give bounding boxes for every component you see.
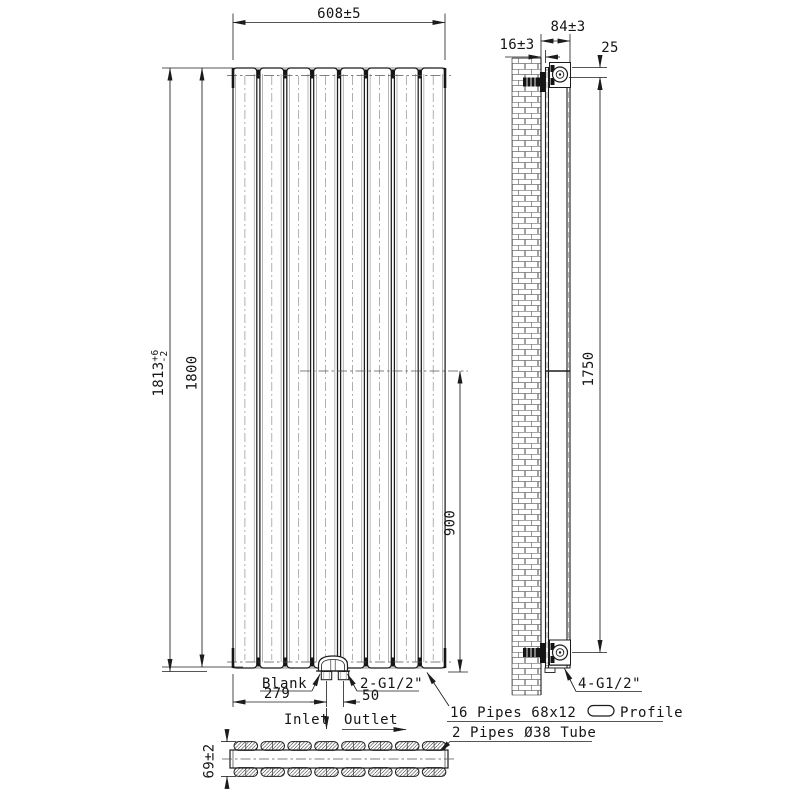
label-blank-leader: Blank xyxy=(260,674,320,692)
note-tube-label: 2 Pipes Ø38 Tube xyxy=(452,725,596,741)
end-cap xyxy=(444,648,447,668)
dim-height-panel: 1800 xyxy=(162,68,243,667)
inlet-label: Inlet xyxy=(284,712,329,728)
radiator-side-profile xyxy=(545,68,571,673)
front-view: 608±5 1813+6-2 1800 900 xyxy=(150,6,468,730)
label-connections-leader: 2-G1/2" xyxy=(348,674,424,692)
panel-joint xyxy=(337,70,341,79)
bottom-foot xyxy=(545,668,555,673)
connections-label: 2-G1/2" xyxy=(360,676,423,692)
label-side-connections-leader: 4-G1/2" xyxy=(565,669,643,693)
dim-center-label: 900 xyxy=(443,510,459,536)
panel-joint xyxy=(257,70,261,79)
radiator-panels xyxy=(233,68,445,668)
dim-width-label: 608±5 xyxy=(317,6,361,22)
side-view: 16±3 84±3 25 1750 4-G1/2" xyxy=(500,19,642,695)
wall-section xyxy=(512,58,541,695)
radiator-drawing-canvas: 608±5 1813+6-2 1800 900 xyxy=(0,0,800,800)
panel-joint xyxy=(283,70,287,79)
inlet-tapping xyxy=(321,672,331,680)
side-connections-label: 4-G1/2" xyxy=(578,676,641,692)
inlet-outlet-labels: Inlet Outlet xyxy=(284,708,406,730)
dim-bracket-span: 1750 xyxy=(572,78,607,653)
dim-depth-from-wall: 84±3 xyxy=(541,19,585,62)
dim-height-panel-label: 1800 xyxy=(185,356,201,391)
dim-height-overall-label: 1813+6-2 xyxy=(150,350,170,397)
notes: 16 Pipes 68x12 Profile 2 Pipes Ø38 Tube xyxy=(427,673,683,753)
dim-wall-gap-label: 16±3 xyxy=(500,37,535,53)
note-tube: 2 Pipes Ø38 Tube xyxy=(440,725,597,752)
technical-drawing-page: 608±5 1813+6-2 1800 900 xyxy=(0,0,800,800)
dim-top-offset-label: 25 xyxy=(601,40,618,56)
panel-joint xyxy=(391,70,395,79)
wall-anchor-screw xyxy=(523,648,540,657)
panel-joint xyxy=(364,70,368,79)
outlet-tapping xyxy=(338,672,348,680)
panel-joint xyxy=(418,70,422,79)
note-profile: 16 Pipes 68x12 Profile xyxy=(427,673,683,722)
note-profile-suffix: Profile xyxy=(620,705,683,721)
dim-depth-from-wall-label: 84±3 xyxy=(551,19,586,35)
note-profile-prefix: 16 Pipes 68x12 xyxy=(450,705,576,721)
end-cap xyxy=(444,68,447,88)
dim-depth-label: 69±2 xyxy=(202,744,218,779)
dim-top-offset: 25 xyxy=(569,40,619,89)
end-cap xyxy=(232,68,235,88)
blank-label: Blank xyxy=(262,676,307,692)
panel-joint xyxy=(310,70,314,79)
bottom-valve-dome xyxy=(316,656,350,680)
wall-anchor-screw xyxy=(523,78,540,87)
outlet-label: Outlet xyxy=(344,712,398,728)
section-view: 69±2 xyxy=(202,729,457,789)
dim-bracket-span-label: 1750 xyxy=(581,352,597,387)
end-cap xyxy=(232,648,235,668)
profile-shape-icon xyxy=(588,706,614,717)
dim-width: 608±5 xyxy=(233,6,445,60)
